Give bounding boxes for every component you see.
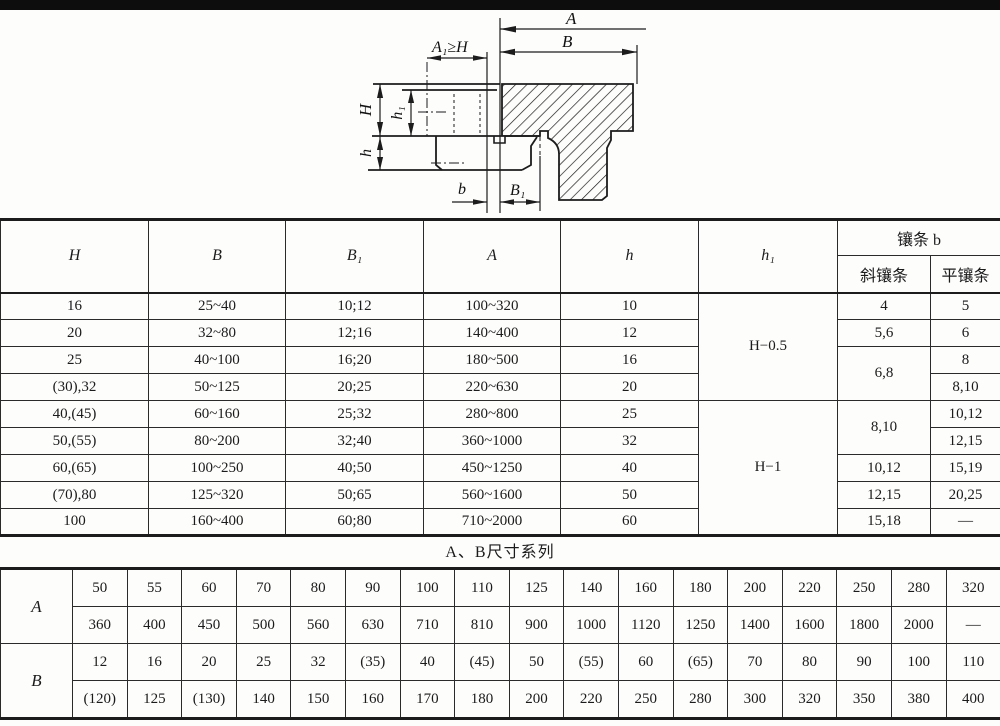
cell: 20 — [1, 320, 149, 347]
cell: 810 — [455, 607, 510, 644]
cell: 60,(65) — [1, 455, 149, 482]
cell: 40 — [561, 455, 699, 482]
cell: (70),80 — [1, 482, 149, 509]
header-gib-b: 镶条 b — [838, 220, 1000, 256]
cell: 40~100 — [149, 347, 286, 374]
header-h1: h₁ — [699, 220, 838, 293]
header-B: B — [149, 220, 286, 293]
cell: 50~125 — [149, 374, 286, 401]
cell: 20;25 — [286, 374, 424, 401]
label-h1: h₁ — [389, 106, 406, 120]
cell: 40;50 — [286, 455, 424, 482]
cell: 500 — [236, 607, 291, 644]
oblique-gib-cell: 15,18 — [838, 509, 931, 536]
cell: 160~400 — [149, 509, 286, 536]
cell: 60~160 — [149, 401, 286, 428]
table-row: 20 32~80 12;16 140~400 12 5,6 6 — [1, 320, 1000, 347]
scanned-standard-page: A B A₁≥H H h₁ h b B₁ H B B₁ A h h₁ 镶条 b — [0, 0, 1000, 726]
cell: 12;16 — [286, 320, 424, 347]
header-row-1: H B B₁ A h h₁ 镶条 b — [1, 220, 1000, 256]
cell: 180 — [673, 569, 728, 607]
cell: 90 — [345, 569, 400, 607]
cell: 50 — [73, 569, 128, 607]
cell: 320 — [782, 681, 837, 719]
flat-gib-cell: 10,12 — [931, 401, 1000, 428]
cell: 25;32 — [286, 401, 424, 428]
cell: 180 — [455, 681, 510, 719]
oblique-gib-cell: 8,10 — [838, 401, 931, 455]
header-oblique-gib: 斜镶条 — [838, 256, 931, 293]
cell: 250 — [618, 681, 673, 719]
table-row: (120) 125 (130) 140 150 160 170 180 200 … — [1, 681, 1000, 719]
cell: 110 — [946, 644, 1000, 681]
header-flat-gib: 平镶条 — [931, 256, 1000, 293]
cell: 110 — [455, 569, 510, 607]
table-row: 100 160~400 60;80 710~2000 60 15,18 — — [1, 509, 1000, 536]
cell: 220~630 — [424, 374, 561, 401]
cell: 300 — [728, 681, 783, 719]
cell: 100~320 — [424, 293, 561, 320]
cell: 10;12 — [286, 293, 424, 320]
cell: 1400 — [728, 607, 783, 644]
cell: 100~250 — [149, 455, 286, 482]
cell: 170 — [400, 681, 455, 719]
cell: 140~400 — [424, 320, 561, 347]
cell: 100 — [1, 509, 149, 536]
cell: 60 — [561, 509, 699, 536]
cell: 50;65 — [286, 482, 424, 509]
size-series-table: A 50 55 60 70 80 90 100 110 125 140 160 … — [0, 567, 1000, 720]
cell: 16;20 — [286, 347, 424, 374]
cell: (55) — [564, 644, 619, 681]
cell: 380 — [891, 681, 946, 719]
cell: 220 — [564, 681, 619, 719]
cell: (120) — [73, 681, 128, 719]
cell: 630 — [345, 607, 400, 644]
cell: 125 — [509, 569, 564, 607]
cell: 280 — [891, 569, 946, 607]
cell: 450~1250 — [424, 455, 561, 482]
cell: 12 — [73, 644, 128, 681]
cell: 16 — [561, 347, 699, 374]
cell: 320 — [946, 569, 1000, 607]
cell: 70 — [728, 644, 783, 681]
table-row: A 50 55 60 70 80 90 100 110 125 140 160 … — [1, 569, 1000, 607]
cell: 25 — [236, 644, 291, 681]
cell: 60 — [618, 644, 673, 681]
cell: 32~80 — [149, 320, 286, 347]
cell: 180~500 — [424, 347, 561, 374]
cell: 25 — [561, 401, 699, 428]
cell: 160 — [345, 681, 400, 719]
cell: 100 — [891, 644, 946, 681]
label-B1: B₁ — [510, 182, 525, 199]
cell: 25~40 — [149, 293, 286, 320]
cell: 200 — [728, 569, 783, 607]
label-H: H — [356, 102, 375, 117]
cell: 350 — [837, 681, 892, 719]
table-row: 25 40~100 16;20 180~500 16 6,8 8 — [1, 347, 1000, 374]
cell: 55 — [127, 569, 182, 607]
flat-gib-cell: 8,10 — [931, 374, 1000, 401]
header-B1: B₁ — [286, 220, 424, 293]
cell: 90 — [837, 644, 892, 681]
table-row: (70),80 125~320 50;65 560~1600 50 12,15 … — [1, 482, 1000, 509]
flat-gib-cell: 5 — [931, 293, 1000, 320]
cell: 125~320 — [149, 482, 286, 509]
cell: 20 — [561, 374, 699, 401]
flat-gib-cell: 12,15 — [931, 428, 1000, 455]
oblique-gib-cell: 4 — [838, 293, 931, 320]
cell: 140 — [564, 569, 619, 607]
cell: 710 — [400, 607, 455, 644]
cell: 160 — [618, 569, 673, 607]
cell: 16 — [1, 293, 149, 320]
cell: 400 — [127, 607, 182, 644]
cell: 220 — [782, 569, 837, 607]
cell: 2000 — [891, 607, 946, 644]
cell: 1120 — [618, 607, 673, 644]
table-row: 60,(65) 100~250 40;50 450~1250 40 10,12 … — [1, 455, 1000, 482]
cell: — — [946, 607, 1000, 644]
flat-gib-cell: 6 — [931, 320, 1000, 347]
table-row: 40,(45) 60~160 25;32 280~800 25 H−1 8,10… — [1, 401, 1000, 428]
cell: 560 — [291, 607, 346, 644]
flat-gib-cell: 15,19 — [931, 455, 1000, 482]
cell: 560~1600 — [424, 482, 561, 509]
cell: 900 — [509, 607, 564, 644]
label-h: h — [358, 149, 375, 157]
cell: 16 — [127, 644, 182, 681]
cell: 50 — [561, 482, 699, 509]
header-H: H — [1, 220, 149, 293]
main-dimensions-table: H B B₁ A h h₁ 镶条 b 斜镶条 平镶条 16 25~40 10;1… — [0, 218, 1000, 537]
cell: 250 — [837, 569, 892, 607]
cell: (65) — [673, 644, 728, 681]
series-table-title: A、B尺寸系列 — [0, 537, 1000, 567]
oblique-gib-cell: 5,6 — [838, 320, 931, 347]
cell: 140 — [236, 681, 291, 719]
label-B: B — [562, 32, 573, 51]
cell: 60 — [182, 569, 237, 607]
cell: 50,(55) — [1, 428, 149, 455]
cell: 12 — [561, 320, 699, 347]
cell: 50 — [509, 644, 564, 681]
cell: 32;40 — [286, 428, 424, 455]
cell: (35) — [345, 644, 400, 681]
cell: 80 — [782, 644, 837, 681]
oblique-gib-cell: 12,15 — [838, 482, 931, 509]
cell: 100 — [400, 569, 455, 607]
cell: 32 — [561, 428, 699, 455]
cell: 450 — [182, 607, 237, 644]
series-row-label-B: B — [1, 644, 73, 719]
oblique-gib-cell: 10,12 — [838, 455, 931, 482]
cell: 400 — [946, 681, 1000, 719]
header-A: A — [424, 220, 561, 293]
header-h: h — [561, 220, 699, 293]
cell: 60;80 — [286, 509, 424, 536]
cell: 40 — [400, 644, 455, 681]
cell: 360~1000 — [424, 428, 561, 455]
cell: 80~200 — [149, 428, 286, 455]
cell: 200 — [509, 681, 564, 719]
cell: 10 — [561, 293, 699, 320]
cell: 280 — [673, 681, 728, 719]
cell: 710~2000 — [424, 509, 561, 536]
flat-gib-cell: 20,25 — [931, 482, 1000, 509]
table-row: 360 400 450 500 560 630 710 810 900 1000… — [1, 607, 1000, 644]
cell: 360 — [73, 607, 128, 644]
cell: 20 — [182, 644, 237, 681]
cell: 1250 — [673, 607, 728, 644]
cell: (45) — [455, 644, 510, 681]
cell: (30),32 — [1, 374, 149, 401]
cell: (130) — [182, 681, 237, 719]
cell: 80 — [291, 569, 346, 607]
scan-top-bar — [0, 0, 1000, 10]
cell: 70 — [236, 569, 291, 607]
cell: 1000 — [564, 607, 619, 644]
table-row: 16 25~40 10;12 100~320 10 H−0.5 4 5 — [1, 293, 1000, 320]
label-A1-geq-H: A₁≥H — [431, 39, 469, 56]
oblique-gib-cell: 6,8 — [838, 347, 931, 401]
cell: 1800 — [837, 607, 892, 644]
series-row-label-A: A — [1, 569, 73, 644]
flat-gib-cell: 8 — [931, 347, 1000, 374]
table-row: B 12 16 20 25 32 (35) 40 (45) 50 (55) 60… — [1, 644, 1000, 681]
cell: 25 — [1, 347, 149, 374]
label-A: A — [565, 10, 577, 28]
label-b: b — [458, 181, 466, 198]
cell: 40,(45) — [1, 401, 149, 428]
cell: 280~800 — [424, 401, 561, 428]
flat-gib-cell: — — [931, 509, 1000, 536]
cell: 32 — [291, 644, 346, 681]
cell: 1600 — [782, 607, 837, 644]
cell: 125 — [127, 681, 182, 719]
h1-group-cell: H−1 — [699, 401, 838, 536]
technical-drawing: A B A₁≥H H h₁ h b B₁ — [0, 10, 1000, 218]
cell: 150 — [291, 681, 346, 719]
h1-group-cell: H−0.5 — [699, 293, 838, 401]
